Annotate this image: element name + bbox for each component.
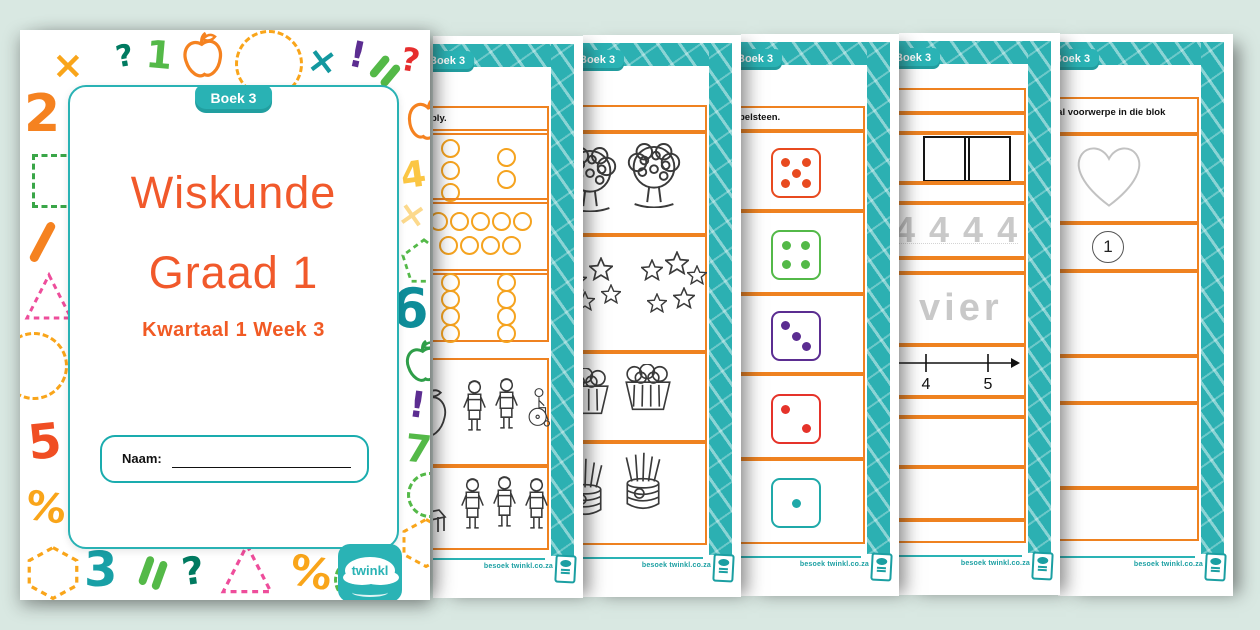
decoration-glyph-icon: × bbox=[305, 42, 340, 82]
decoration-glyph-icon: 7 bbox=[403, 429, 430, 470]
decoration-hexagon-icon bbox=[26, 546, 80, 600]
page-footer-url: besoek twinkl.co.za bbox=[484, 563, 553, 570]
worksheet-row bbox=[583, 233, 707, 354]
page-footer-rule bbox=[1058, 556, 1195, 558]
worksheet-row bbox=[583, 440, 707, 545]
product-preview: { "app": {"background": "#d9e8e2"}, "col… bbox=[0, 0, 1260, 630]
die-4-icon bbox=[771, 230, 821, 280]
worksheet-row bbox=[741, 292, 865, 376]
counting-dot bbox=[502, 236, 521, 255]
decoration-glyph-icon: ? bbox=[114, 41, 136, 74]
svg-text:4: 4 bbox=[922, 376, 931, 393]
twinkl-stamp-icon bbox=[712, 553, 734, 582]
worksheet-row bbox=[1058, 401, 1199, 490]
page-badge: Boek 3 bbox=[583, 50, 624, 71]
star-icon bbox=[601, 284, 621, 304]
die-3-icon bbox=[771, 311, 821, 361]
star-icon bbox=[665, 251, 689, 275]
worksheet-row: vier bbox=[899, 271, 1026, 347]
die-pip bbox=[792, 499, 801, 508]
worksheet-row bbox=[1058, 486, 1199, 541]
twinkl-cloud-icon: twinkl bbox=[345, 557, 395, 584]
counting-dot bbox=[481, 236, 500, 255]
basket-icon bbox=[583, 368, 615, 417]
die-pip bbox=[781, 158, 790, 167]
star-icon bbox=[583, 291, 595, 311]
tree-icon bbox=[583, 146, 621, 212]
worksheet-row bbox=[1058, 269, 1199, 358]
page-footer-rule bbox=[899, 555, 1022, 557]
chair-icon bbox=[433, 484, 447, 542]
page-footer-url: besoek twinkl.co.za bbox=[642, 562, 711, 569]
cover-title-line1: Wiskunde bbox=[70, 167, 397, 219]
cover-title-line2: Graad 1 bbox=[70, 247, 397, 299]
worksheet-row bbox=[899, 465, 1026, 522]
name-label: Naam: bbox=[122, 451, 162, 466]
page-frame-side bbox=[1201, 42, 1224, 554]
counting-dot bbox=[492, 212, 511, 231]
die-pip bbox=[801, 260, 810, 269]
trace-box bbox=[964, 136, 1011, 182]
die-pip bbox=[792, 169, 801, 178]
decoration-glyph-icon: % bbox=[287, 549, 336, 598]
page-frame-side bbox=[1028, 41, 1051, 553]
worksheet-page-objects: Boek 3 besoek twinkl.co.za bbox=[583, 35, 741, 597]
die-pip bbox=[802, 424, 811, 433]
heart-icon bbox=[1070, 140, 1148, 212]
decoration-glyph-icon: ? bbox=[179, 551, 206, 592]
counting-dot bbox=[497, 170, 516, 189]
worksheet-row: 45 bbox=[899, 343, 1026, 399]
star-icon bbox=[583, 269, 587, 291]
die-pip bbox=[802, 179, 811, 188]
basket-icon bbox=[619, 364, 677, 413]
worksheet-row bbox=[583, 350, 707, 444]
can-icon bbox=[583, 456, 611, 517]
page-badge: Boek 3 bbox=[899, 48, 940, 69]
child-icon bbox=[493, 378, 520, 435]
child-icon bbox=[461, 380, 488, 437]
decoration-glyph-icon: ! bbox=[407, 387, 428, 425]
die-pip bbox=[792, 332, 801, 341]
name-field-box: Naam: bbox=[100, 435, 369, 483]
die-pip bbox=[782, 260, 791, 269]
twinkl-logo-swash bbox=[352, 588, 388, 597]
decoration-glyph-icon: ! bbox=[345, 37, 369, 76]
worksheet-row bbox=[899, 131, 1026, 185]
decoration-circle-icon bbox=[20, 332, 68, 400]
die-5-icon bbox=[771, 148, 821, 198]
decoration-apple-icon bbox=[400, 93, 430, 150]
worksheet-row bbox=[1058, 132, 1199, 225]
twinkl-stamp-icon bbox=[1031, 551, 1053, 580]
worksheet-row bbox=[741, 129, 865, 213]
worksheet-row: 1 bbox=[1058, 221, 1199, 273]
worksheet-row: tal voorwerpe in die blok bbox=[1058, 97, 1199, 136]
counting-dot bbox=[441, 161, 460, 180]
counting-dot bbox=[433, 212, 448, 231]
book-number-badge: Boek 3 bbox=[195, 85, 273, 113]
page-footer-rule bbox=[433, 558, 545, 560]
twinkl-stamp-icon bbox=[554, 554, 576, 583]
counting-dot bbox=[497, 324, 516, 343]
twinkl-stamp-icon bbox=[1204, 552, 1226, 581]
worksheet-page-dice: Boek 3 belsteen. besoek twinkl.co.za bbox=[741, 34, 899, 596]
counting-dot bbox=[513, 212, 532, 231]
worksheet-row bbox=[741, 372, 865, 461]
decoration-glyph-icon: 5 bbox=[26, 416, 64, 467]
worksheet-page-dots: Boek 3 bly. besoek twinkl.co.za bbox=[433, 36, 583, 598]
worksheet-page-tracing: Boek 3 4 4 4 4vier45 besoek twinkl.co.za bbox=[899, 33, 1060, 595]
trace-box bbox=[923, 136, 970, 182]
decoration-apple-icon bbox=[178, 30, 228, 86]
worksheet-row bbox=[433, 198, 549, 275]
worksheet-row: 4 4 4 4 bbox=[899, 201, 1026, 260]
decoration-glyph-icon: × bbox=[52, 46, 84, 84]
page-frame-side bbox=[551, 44, 574, 556]
answer-circle: 1 bbox=[1092, 231, 1124, 263]
twinkl-logo: twinkl bbox=[338, 544, 402, 600]
die-pip bbox=[802, 158, 811, 167]
die-pip bbox=[781, 179, 790, 188]
child-icon bbox=[523, 478, 550, 535]
counting-dot bbox=[497, 148, 516, 167]
svg-text:5: 5 bbox=[984, 376, 993, 393]
decoration-glyph-icon: × bbox=[395, 196, 429, 234]
die-1-icon bbox=[771, 478, 821, 528]
die-pip bbox=[782, 241, 791, 250]
page-badge: Boek 3 bbox=[1058, 49, 1099, 70]
worksheet-row bbox=[741, 457, 865, 544]
page-footer-rule bbox=[583, 557, 703, 559]
star-icon bbox=[673, 287, 695, 309]
counting-dot bbox=[450, 212, 469, 231]
worksheet-row bbox=[433, 129, 549, 204]
star-icon bbox=[647, 293, 667, 313]
name-write-line bbox=[172, 467, 351, 468]
instruction-text: tal voorwerpe in die blok bbox=[1058, 107, 1165, 118]
decoration-glyph-icon: ? bbox=[398, 43, 422, 78]
worksheet-row bbox=[433, 269, 549, 342]
worksheet-row bbox=[741, 209, 865, 296]
trace-guide-line bbox=[899, 243, 1018, 244]
decoration-triangle-icon bbox=[24, 272, 74, 325]
counting-dot bbox=[441, 324, 460, 343]
worksheet-row bbox=[899, 518, 1026, 543]
counting-dot bbox=[439, 236, 458, 255]
die-pip bbox=[781, 405, 790, 414]
decoration-bars-icon bbox=[138, 555, 169, 591]
worksheet-row bbox=[899, 415, 1026, 469]
workbook-cover-page: ×?1×!?25%3?%4×6!7 Boek 3 Wiskunde Graad … bbox=[20, 30, 430, 600]
wheelchair-icon bbox=[523, 386, 551, 428]
twinkl-logo-text: twinkl bbox=[345, 563, 395, 578]
decoration-bars-icon bbox=[368, 54, 402, 88]
star-icon bbox=[687, 265, 707, 285]
worksheet-row bbox=[583, 130, 707, 237]
worksheet-row bbox=[433, 358, 549, 468]
page-badge: Boek 3 bbox=[433, 51, 474, 72]
instruction-text: bly. bbox=[433, 113, 447, 124]
cover-subtitle: Kwartaal 1 Week 3 bbox=[70, 319, 397, 342]
child-icon bbox=[459, 478, 486, 535]
worksheet-page-count-shape: Boek 3 tal voorwerpe in die blok1 besoek… bbox=[1058, 34, 1233, 596]
star-icon bbox=[641, 259, 663, 281]
page-badge: Boek 3 bbox=[741, 49, 782, 70]
counting-dot bbox=[441, 139, 460, 158]
worksheet-row bbox=[1058, 354, 1199, 405]
die-pip bbox=[781, 321, 790, 330]
tree-icon bbox=[623, 142, 685, 208]
number-line: 45 bbox=[899, 351, 1025, 393]
can-icon bbox=[617, 450, 669, 511]
counting-dot bbox=[460, 236, 479, 255]
decoration-glyph-icon: 4 bbox=[399, 156, 429, 195]
page-frame-side bbox=[709, 43, 732, 555]
cover-card: Boek 3 Wiskunde Graad 1 Kwartaal 1 Week … bbox=[68, 85, 399, 549]
page-footer-url: besoek twinkl.co.za bbox=[800, 561, 869, 568]
decoration-apple-icon bbox=[401, 338, 430, 390]
decoration-circle-icon bbox=[407, 472, 430, 518]
instruction-text: belsteen. bbox=[741, 112, 780, 123]
die-pip bbox=[802, 342, 811, 351]
twinkl-stamp-icon bbox=[870, 552, 892, 581]
decoration-glyph-icon: 2 bbox=[24, 88, 60, 140]
decoration-glyph-icon: % bbox=[23, 485, 68, 530]
decoration-hexagon-icon bbox=[401, 518, 430, 571]
page-footer-url: besoek twinkl.co.za bbox=[1134, 561, 1203, 568]
page-footer-rule bbox=[741, 556, 861, 558]
decoration-glyph-icon: 3 bbox=[84, 546, 117, 594]
counting-dot bbox=[471, 212, 490, 231]
child-icon bbox=[491, 476, 518, 533]
star-icon bbox=[589, 257, 613, 281]
decoration-slash-icon bbox=[28, 220, 57, 263]
apple-icon bbox=[433, 386, 451, 442]
die-pip bbox=[801, 241, 810, 250]
worksheet-row bbox=[433, 464, 549, 550]
die-2-icon bbox=[771, 394, 821, 444]
page-footer-url: besoek twinkl.co.za bbox=[961, 560, 1030, 567]
decoration-glyph-icon: 1 bbox=[144, 35, 174, 75]
decoration-triangle-icon bbox=[220, 542, 274, 599]
trace-word: vier bbox=[919, 287, 1003, 330]
page-frame-side bbox=[867, 42, 890, 554]
trace-digits: 4 4 4 4 bbox=[899, 209, 1019, 251]
